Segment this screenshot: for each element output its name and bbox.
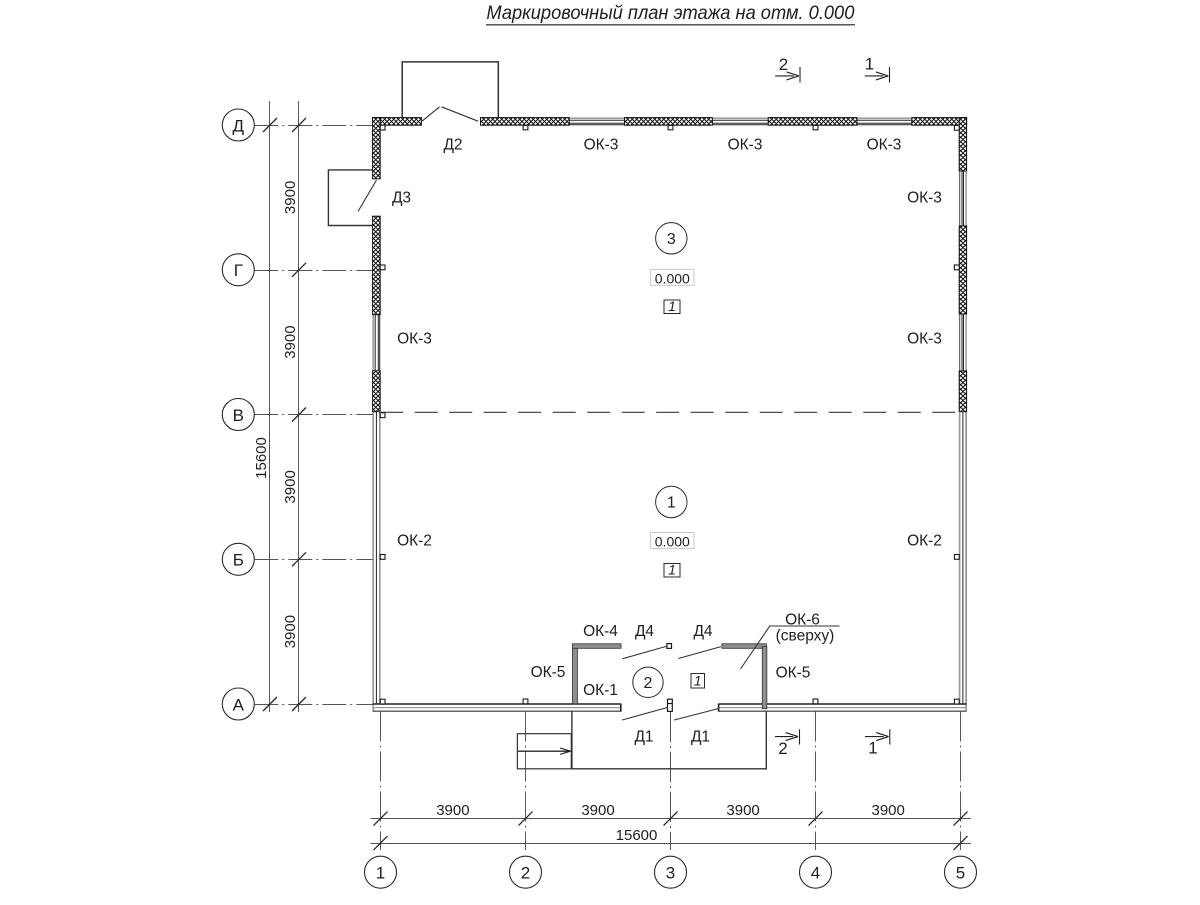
svg-text:3: 3: [667, 231, 676, 248]
svg-text:ОК-3: ОК-3: [907, 190, 942, 207]
svg-text:3900: 3900: [282, 325, 299, 358]
svg-text:1: 1: [668, 298, 676, 314]
svg-text:Д2: Д2: [443, 137, 462, 154]
svg-text:А: А: [233, 695, 245, 714]
svg-text:5: 5: [956, 864, 965, 883]
svg-text:2: 2: [779, 55, 788, 74]
svg-text:3900: 3900: [282, 181, 299, 214]
svg-text:3900: 3900: [872, 802, 905, 819]
svg-text:ОК-1: ОК-1: [583, 682, 618, 699]
svg-text:2: 2: [778, 739, 787, 758]
svg-text:Г: Г: [234, 261, 243, 280]
svg-text:Д: Д: [233, 116, 245, 135]
svg-text:ОК-2: ОК-2: [907, 533, 942, 550]
svg-text:1: 1: [868, 739, 877, 758]
svg-text:Д3: Д3: [392, 190, 411, 207]
svg-text:ОК-5: ОК-5: [776, 665, 811, 682]
svg-text:ОК-5: ОК-5: [531, 664, 566, 681]
svg-text:15600: 15600: [616, 827, 658, 844]
svg-text:3900: 3900: [436, 802, 469, 819]
svg-text:ОК-3: ОК-3: [397, 331, 432, 348]
svg-text:3900: 3900: [282, 615, 299, 648]
svg-text:2: 2: [521, 864, 530, 883]
svg-text:3900: 3900: [282, 470, 299, 503]
svg-text:4: 4: [811, 864, 820, 883]
svg-text:3: 3: [666, 864, 675, 883]
svg-text:Маркировочный план этажа на от: Маркировочный план этажа на отм. 0.000: [486, 2, 854, 24]
svg-text:Д1: Д1: [634, 729, 653, 746]
svg-text:1: 1: [694, 673, 702, 689]
svg-text:0.000: 0.000: [655, 534, 690, 550]
svg-text:ОК-3: ОК-3: [728, 137, 763, 154]
svg-text:3900: 3900: [581, 802, 614, 819]
svg-text:1: 1: [668, 562, 676, 578]
svg-text:0.000: 0.000: [655, 270, 690, 286]
svg-text:Д4: Д4: [693, 623, 712, 640]
svg-text:1: 1: [865, 55, 874, 74]
svg-text:2: 2: [644, 675, 653, 692]
svg-text:ОК-3: ОК-3: [907, 331, 942, 348]
svg-text:Д1: Д1: [691, 729, 710, 746]
svg-text:ОК-3: ОК-3: [867, 137, 902, 154]
svg-text:15600: 15600: [253, 437, 270, 479]
svg-text:Д4: Д4: [635, 623, 654, 640]
svg-text:1: 1: [667, 495, 676, 512]
svg-text:ОК-2: ОК-2: [397, 533, 432, 550]
svg-text:ОК-4: ОК-4: [583, 623, 618, 640]
svg-text:3900: 3900: [726, 802, 759, 819]
svg-text:1: 1: [376, 864, 385, 883]
svg-text:В: В: [233, 406, 244, 425]
svg-text:ОК-3: ОК-3: [584, 137, 619, 154]
svg-text:(сверху): (сверху): [776, 628, 835, 645]
svg-text:Б: Б: [233, 551, 244, 570]
